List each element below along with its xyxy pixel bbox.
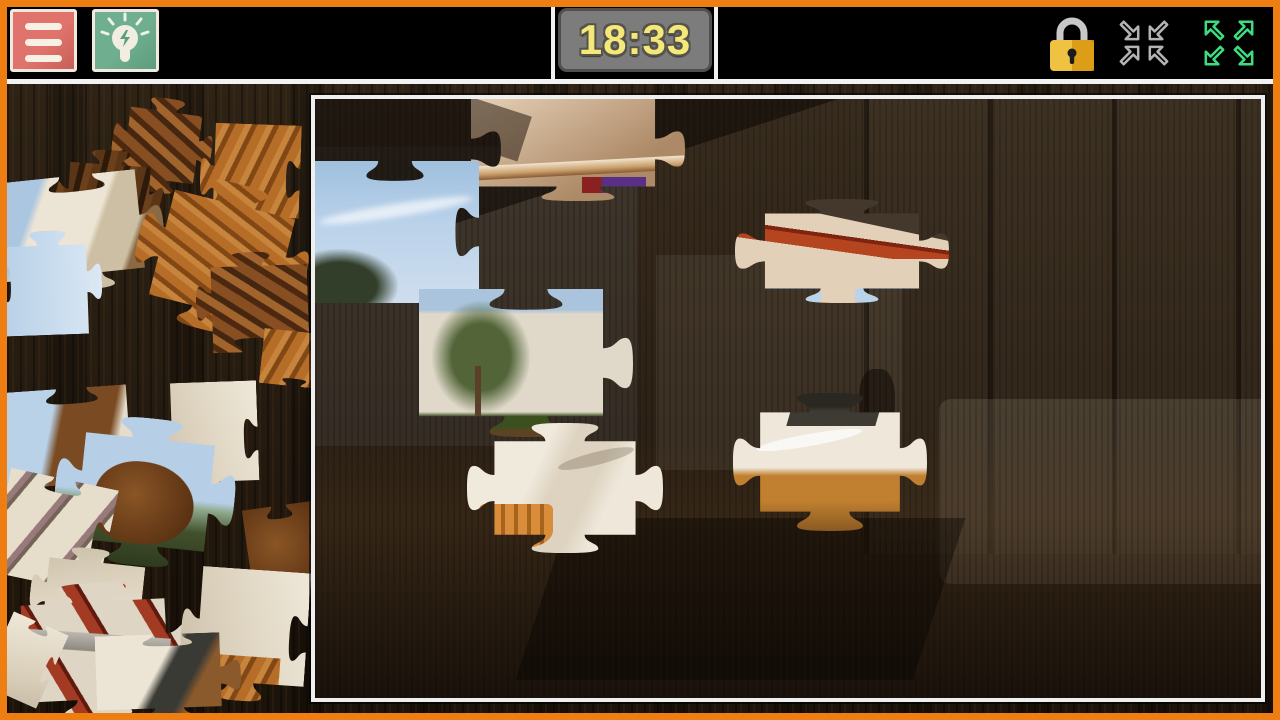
play-area — [7, 84, 1273, 713]
ghost-sofa-region — [939, 399, 1261, 585]
placed-puzzle-piece[interactable] — [733, 393, 927, 531]
ghost-windows-region — [864, 99, 1261, 554]
topbar-divider — [551, 7, 555, 79]
arrows-outward-icon — [1197, 59, 1261, 76]
puzzle-board-ghost-image — [315, 99, 1261, 698]
fullscreen-button[interactable] — [1197, 14, 1261, 77]
arrows-inward-icon — [1112, 59, 1176, 76]
timer-value: 18:33 — [579, 16, 691, 64]
puzzle-board[interactable] — [311, 95, 1265, 702]
placed-puzzle-piece[interactable] — [315, 161, 479, 303]
lightbulb-icon — [95, 56, 156, 73]
topbar-divider — [714, 7, 718, 79]
placed-puzzle-piece[interactable] — [419, 289, 633, 437]
shrink-button[interactable] — [1112, 14, 1176, 77]
hint-button[interactable] — [92, 9, 159, 72]
menu-button[interactable] — [10, 9, 77, 72]
placed-puzzle-piece[interactable] — [471, 99, 685, 201]
toolbar: 18:33 — [7, 7, 1273, 79]
lock-button[interactable] — [1043, 13, 1101, 78]
padlock-icon — [1043, 60, 1101, 77]
placed-puzzle-piece[interactable] — [467, 423, 663, 553]
timer: 18:33 — [558, 8, 712, 72]
placed-puzzle-piece[interactable] — [735, 199, 949, 303]
